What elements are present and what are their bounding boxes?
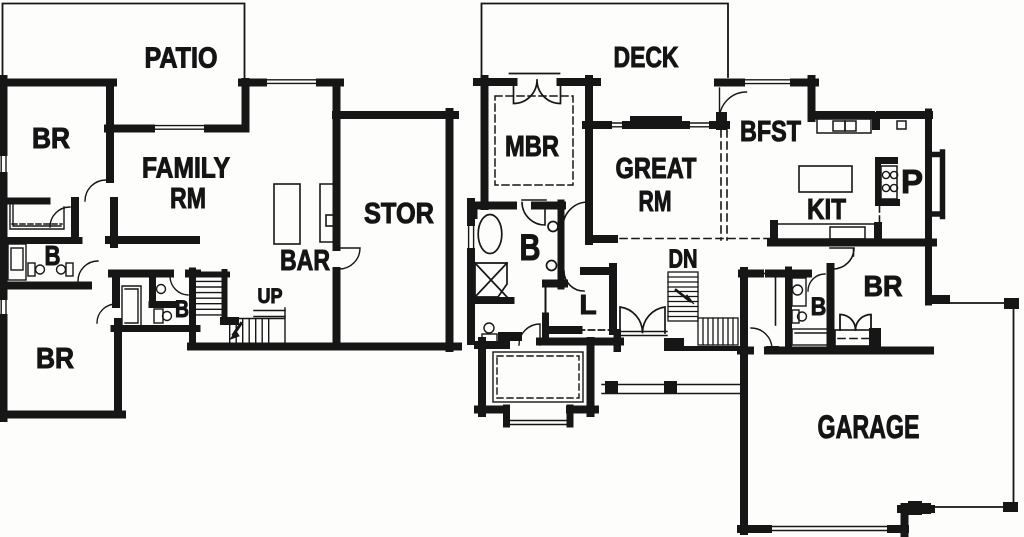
- svg-text:MBR: MBR: [505, 131, 559, 163]
- svg-text:BFST: BFST: [740, 116, 801, 148]
- svg-text:P: P: [901, 163, 923, 200]
- svg-text:B: B: [520, 227, 541, 268]
- svg-text:DN: DN: [669, 244, 698, 274]
- svg-text:GARAGE: GARAGE: [818, 409, 920, 445]
- svg-text:UP: UP: [258, 285, 283, 308]
- svg-text:BR: BR: [32, 123, 70, 155]
- svg-text:B: B: [175, 296, 189, 323]
- svg-text:B: B: [811, 293, 827, 321]
- svg-text:L: L: [579, 289, 596, 320]
- svg-text:PATIO: PATIO: [145, 43, 218, 75]
- svg-text:GREAT: GREAT: [616, 153, 697, 185]
- svg-text:FAMILY: FAMILY: [142, 153, 230, 185]
- svg-text:KIT: KIT: [807, 194, 846, 226]
- svg-text:BR: BR: [36, 343, 74, 375]
- svg-text:RM: RM: [170, 183, 206, 215]
- svg-text:BAR: BAR: [280, 245, 330, 277]
- svg-text:RM: RM: [639, 186, 672, 218]
- svg-text:STOR: STOR: [364, 198, 434, 230]
- svg-text:BR: BR: [864, 271, 903, 303]
- svg-text:DECK: DECK: [614, 42, 679, 74]
